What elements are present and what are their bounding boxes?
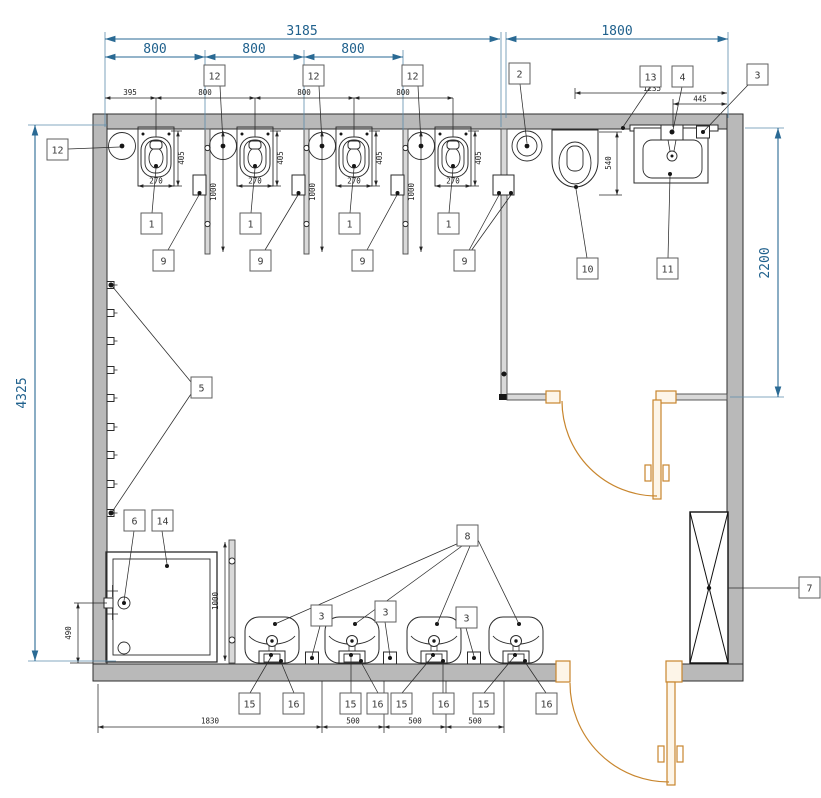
door-jamb xyxy=(556,661,570,682)
svg-text:16: 16 xyxy=(371,700,383,711)
dim-overall-right: 1800 xyxy=(601,24,632,39)
svg-text:10: 10 xyxy=(581,265,593,276)
wc-room-divider-wall xyxy=(501,129,507,397)
hook-rail xyxy=(107,282,118,517)
door-stop xyxy=(502,372,507,377)
door-swing-arc xyxy=(570,683,669,782)
callout-16: 16 xyxy=(536,693,557,714)
wc-partition-right xyxy=(676,394,727,400)
door-handle-icon xyxy=(677,746,683,762)
svg-text:14: 14 xyxy=(156,517,168,528)
wc-partition-left xyxy=(507,394,548,400)
svg-text:9: 9 xyxy=(160,257,166,268)
svg-text:3: 3 xyxy=(754,71,760,82)
door-swing-arc xyxy=(562,401,657,496)
flush-unit xyxy=(493,175,514,195)
door-leaf xyxy=(653,400,661,499)
svg-text:16: 16 xyxy=(287,700,299,711)
dim-overall-left: 3185 xyxy=(286,24,317,39)
svg-text:1830: 1830 xyxy=(201,717,220,726)
callout-2: 2 xyxy=(509,63,530,84)
sanitary-floor-plan: 405 270 1 xyxy=(0,0,821,798)
floor-drain-icon xyxy=(512,131,542,161)
svg-text:6: 6 xyxy=(131,517,137,528)
callout-16: 16 xyxy=(433,693,454,714)
callout-16: 16 xyxy=(283,693,304,714)
shower-tray xyxy=(106,552,217,662)
callout-9: 9 xyxy=(352,250,373,271)
svg-text:800: 800 xyxy=(297,88,311,97)
svg-text:15: 15 xyxy=(477,700,489,711)
svg-text:7: 7 xyxy=(806,584,812,595)
svg-text:15: 15 xyxy=(344,700,356,711)
door-jamb xyxy=(666,661,682,682)
svg-text:16: 16 xyxy=(437,700,449,711)
door-handle-icon xyxy=(658,746,664,762)
svg-text:9: 9 xyxy=(359,257,365,268)
svg-text:12: 12 xyxy=(406,72,418,83)
svg-text:9: 9 xyxy=(257,257,263,268)
callout-12: 12 xyxy=(47,139,68,160)
callout-9: 9 xyxy=(250,250,271,271)
svg-text:3: 3 xyxy=(382,608,388,619)
svg-text:800: 800 xyxy=(242,42,265,57)
callout-3: 3 xyxy=(375,601,396,622)
svg-text:15: 15 xyxy=(243,700,255,711)
wc-room-door xyxy=(546,391,676,499)
svg-text:8: 8 xyxy=(464,532,470,543)
callout-15: 15 xyxy=(391,693,412,714)
callout-4: 4 xyxy=(672,66,693,87)
svg-text:9: 9 xyxy=(461,257,467,268)
callout-9: 9 xyxy=(153,250,174,271)
callout-15: 15 xyxy=(473,693,494,714)
svg-text:12: 12 xyxy=(307,72,319,83)
callout-16: 16 xyxy=(367,693,388,714)
callout-6: 6 xyxy=(124,510,145,531)
svg-text:15: 15 xyxy=(395,700,407,711)
callout-12: 12 xyxy=(204,65,225,86)
wall-right xyxy=(727,114,743,681)
svg-text:3: 3 xyxy=(318,612,324,623)
callout-10: 10 xyxy=(577,258,598,279)
callout-13: 13 xyxy=(640,66,661,87)
vent-shaft xyxy=(690,512,728,663)
callout-3: 3 xyxy=(311,605,332,626)
door-jamb xyxy=(546,391,560,403)
callout-15: 15 xyxy=(340,693,361,714)
callout-15: 15 xyxy=(239,693,260,714)
svg-text:1000: 1000 xyxy=(407,182,416,201)
entrance-door xyxy=(556,661,683,785)
shower-mixer-icon xyxy=(104,585,130,620)
svg-text:5: 5 xyxy=(198,384,204,395)
shower-drain-icon xyxy=(118,642,130,654)
callout-8: 8 xyxy=(457,525,478,546)
wall-left xyxy=(93,114,107,681)
svg-text:490: 490 xyxy=(64,626,73,640)
floor-plan-page: 405 270 1 xyxy=(0,0,821,798)
callout-14: 14 xyxy=(152,510,173,531)
wall-bottom-left xyxy=(93,664,557,681)
svg-text:3: 3 xyxy=(463,614,469,625)
svg-text:800: 800 xyxy=(198,88,212,97)
svg-text:1000: 1000 xyxy=(211,591,220,610)
callout-3: 3 xyxy=(456,607,477,628)
callout-7: 7 xyxy=(799,577,820,598)
callout-12: 12 xyxy=(402,65,423,86)
svg-text:11: 11 xyxy=(661,265,673,276)
callout-12: 12 xyxy=(303,65,324,86)
callout-11: 11 xyxy=(657,258,678,279)
door-handle-icon xyxy=(645,465,651,481)
callout-9: 9 xyxy=(454,250,475,271)
svg-text:1000: 1000 xyxy=(209,182,218,201)
svg-text:16: 16 xyxy=(540,700,552,711)
callout-3: 3 xyxy=(747,64,768,85)
svg-text:540: 540 xyxy=(604,156,613,170)
svg-text:800: 800 xyxy=(396,88,410,97)
callout-5: 5 xyxy=(191,377,212,398)
door-handle-icon xyxy=(663,465,669,481)
svg-text:395: 395 xyxy=(123,88,137,97)
svg-text:500: 500 xyxy=(408,717,422,726)
svg-text:12: 12 xyxy=(208,72,220,83)
dim-wc-room-depth: 2200 xyxy=(758,247,773,278)
door-leaf xyxy=(667,682,675,785)
svg-text:1000: 1000 xyxy=(308,182,317,201)
svg-text:800: 800 xyxy=(143,42,166,57)
svg-text:500: 500 xyxy=(468,717,482,726)
shower-partition: 1000 xyxy=(211,540,235,663)
svg-text:12: 12 xyxy=(51,146,63,157)
svg-text:4: 4 xyxy=(679,73,685,84)
svg-text:2: 2 xyxy=(516,70,522,81)
svg-text:445: 445 xyxy=(693,95,707,104)
dim-overall-depth: 4325 xyxy=(15,377,30,408)
svg-text:13: 13 xyxy=(644,73,656,84)
wc-depth-dim: 540 xyxy=(599,132,622,195)
toilet-icon xyxy=(552,129,598,189)
svg-text:800: 800 xyxy=(341,42,364,57)
svg-text:500: 500 xyxy=(346,717,360,726)
